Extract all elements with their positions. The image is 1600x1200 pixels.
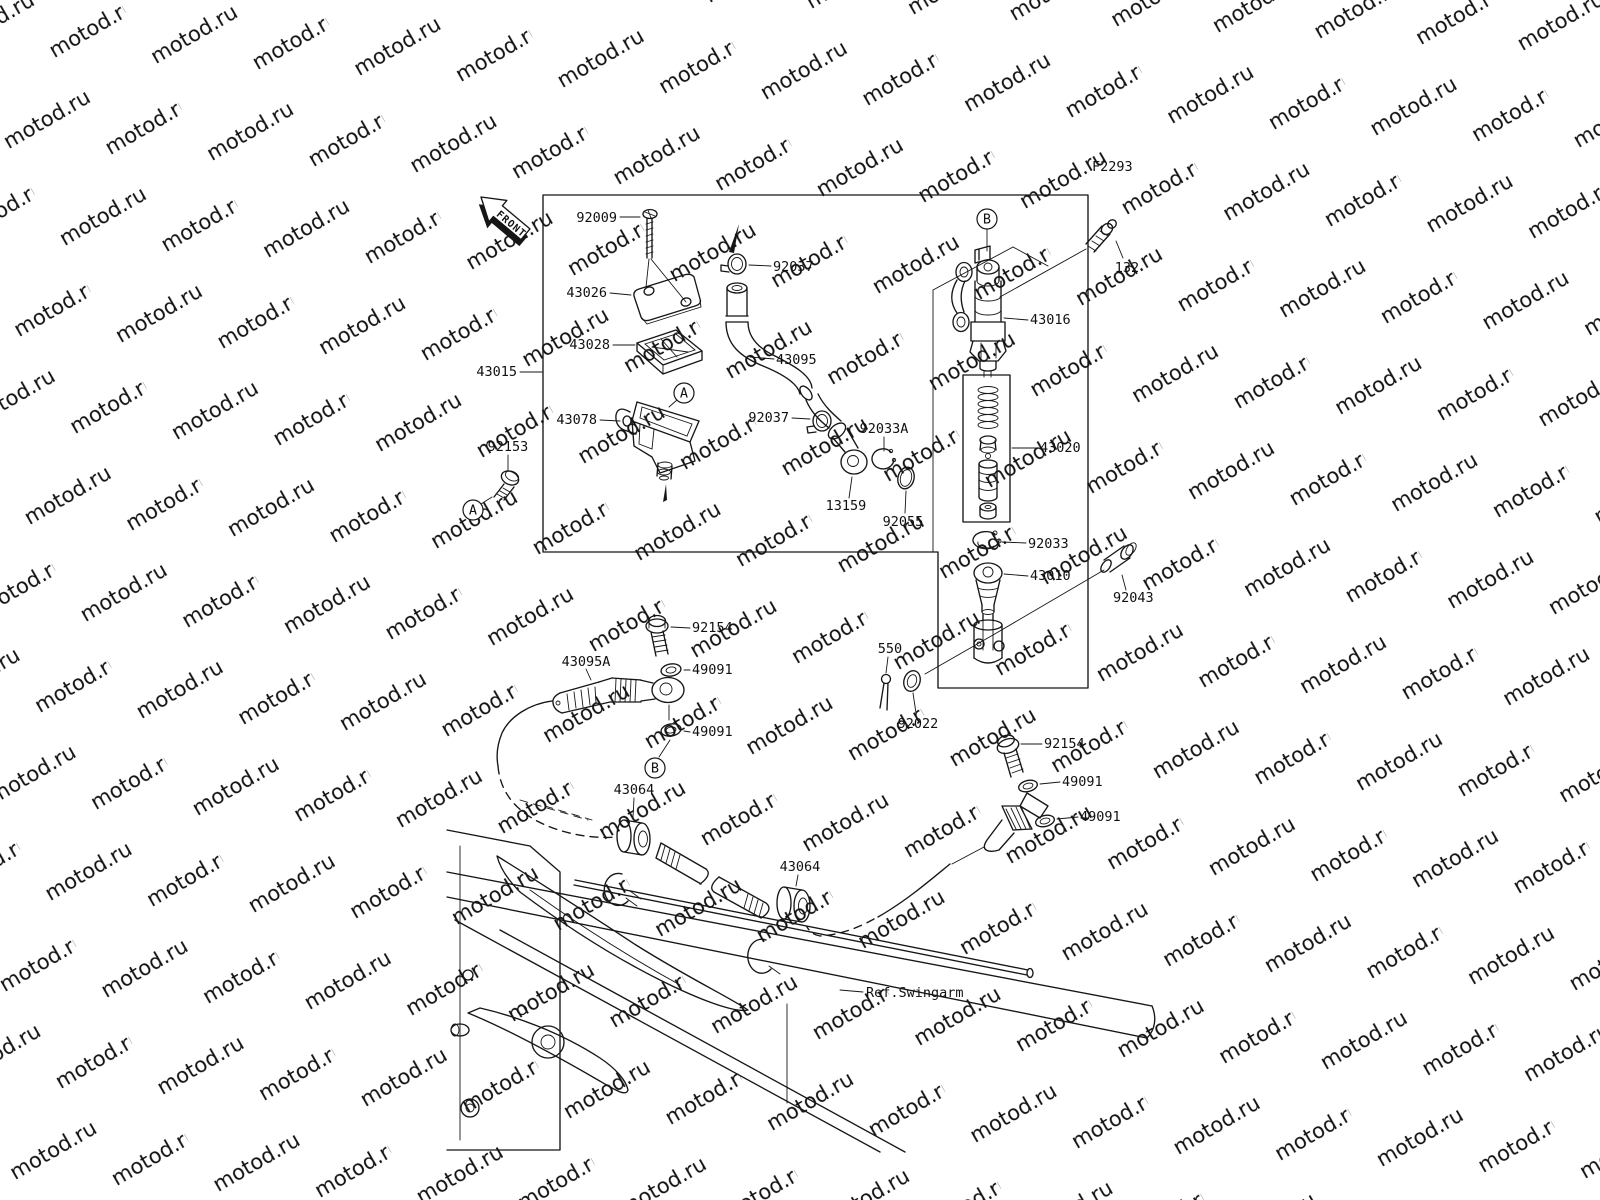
callout-43064-left: 43064 [614,782,655,798]
callout-92037-upper: 92037 [773,259,814,275]
watermark-layer [0,0,1600,1200]
callout-43028: 43028 [569,337,610,353]
callout-92033: 92033 [1028,536,1069,552]
callout-43095: 43095 [776,352,817,368]
callout-43026: 43026 [566,285,607,301]
callout-92055: 92055 [883,514,924,530]
callout-43020: 43020 [1040,440,1081,456]
callout-92033a: 92033A [860,421,909,437]
figure-code: F2293 [1092,159,1133,175]
callout-92153: 92153 [488,439,529,455]
callout-43064-right: 43064 [780,859,821,875]
callout-132: 132 [1115,260,1139,276]
callout-43016: 43016 [1030,312,1071,328]
callout-49091-left-lower: 49091 [692,724,733,740]
callout-92037-lower: 92037 [748,410,789,426]
parts-diagram-page: motod.ru motod.ru F2293 FRONT 92009 4302… [0,0,1600,1200]
callout-92154-right: 92154 [1044,736,1085,752]
callout-49091-right-upper: 49091 [1062,774,1103,790]
callout-92154-left: 92154 [692,620,733,636]
callout-550: 550 [878,641,902,657]
marker-a-reservoir: A [680,386,688,402]
callout-49091-right-lower: 49091 [1080,809,1121,825]
callout-49091-left-upper: 49091 [692,662,733,678]
callout-92009: 92009 [576,210,617,226]
marker-a-bolt: A [469,503,477,519]
callout-43015: 43015 [476,364,517,380]
callout-92043: 92043 [1113,590,1154,606]
marker-b-left-label: B [651,761,659,777]
callout-43095a: 43095A [562,654,611,670]
ref-swingarm-label: Ref.Swingarm [866,985,964,1001]
callout-43010: 43010 [1030,568,1071,584]
marker-b-left: B [645,758,665,778]
parts-diagram: motod.ru motod.ru F2293 FRONT 92009 4302… [0,0,1600,1200]
callout-92022: 92022 [898,716,939,732]
callout-13159: 13159 [826,498,867,514]
marker-b-cylinder: B [983,212,991,228]
callout-43078: 43078 [556,412,597,428]
